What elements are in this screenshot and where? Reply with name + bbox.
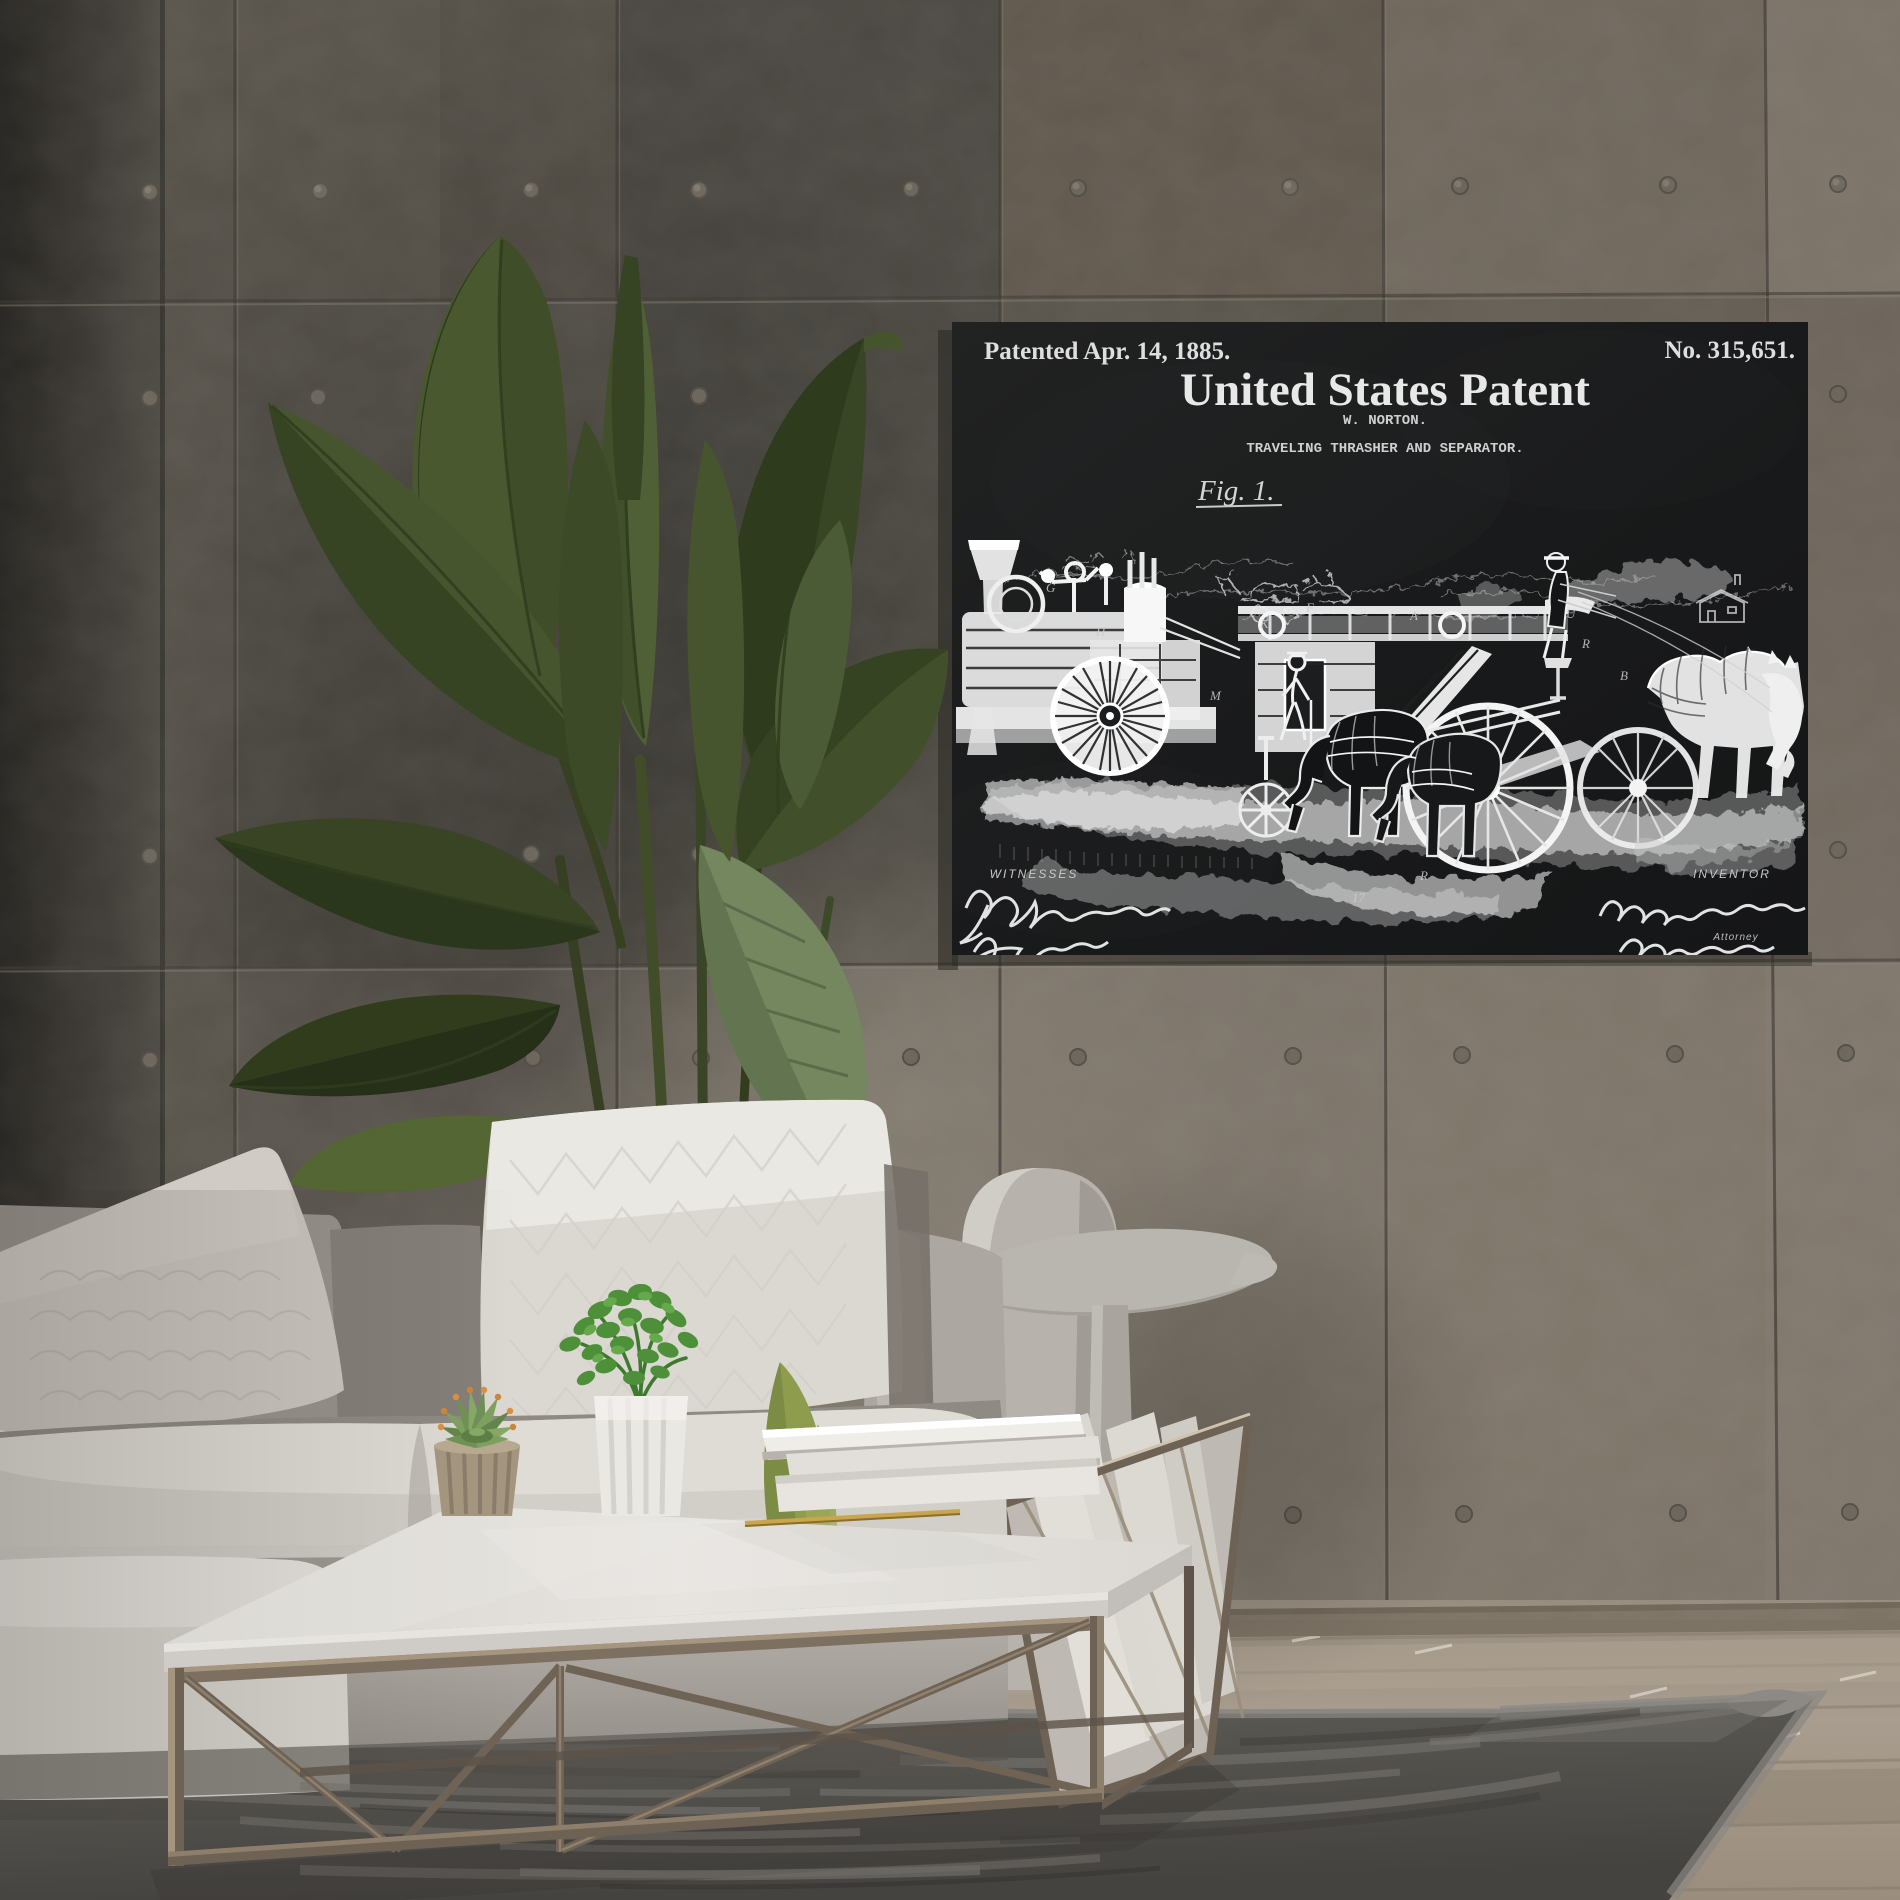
svg-text:Attorney: Attorney [1712,932,1758,943]
svg-text:A: A [1409,608,1418,623]
svg-text:United States Patent: United States Patent [1180,364,1590,416]
svg-text:B: B [1620,668,1628,683]
svg-text:W. NORTON.: W. NORTON. [1343,413,1427,429]
svg-text:No. 315,651.: No. 315,651. [1664,337,1795,364]
svg-text:TRAVELING THRASHER AND SEPARAT: TRAVELING THRASHER AND SEPARATOR. [1246,441,1523,457]
svg-text:INVENTOR: INVENTOR [1693,867,1771,881]
svg-text:F: F [1305,600,1315,615]
svg-text:17: 17 [1352,890,1366,905]
svg-text:Patented Apr. 14, 1885.: Patented Apr. 14, 1885. [984,338,1230,365]
svg-text:G: G [1046,580,1056,595]
svg-text:WITNESSES: WITNESSES [990,867,1079,881]
svg-text:R: R [1419,868,1428,883]
svg-text:R: R [1581,636,1590,651]
svg-text:Fig. 1.: Fig. 1. [1197,475,1275,507]
svg-text:U: U [1566,606,1577,621]
svg-text:K: K [1259,616,1270,631]
svg-text:H: H [1095,624,1106,639]
svg-text:M: M [1209,688,1222,703]
